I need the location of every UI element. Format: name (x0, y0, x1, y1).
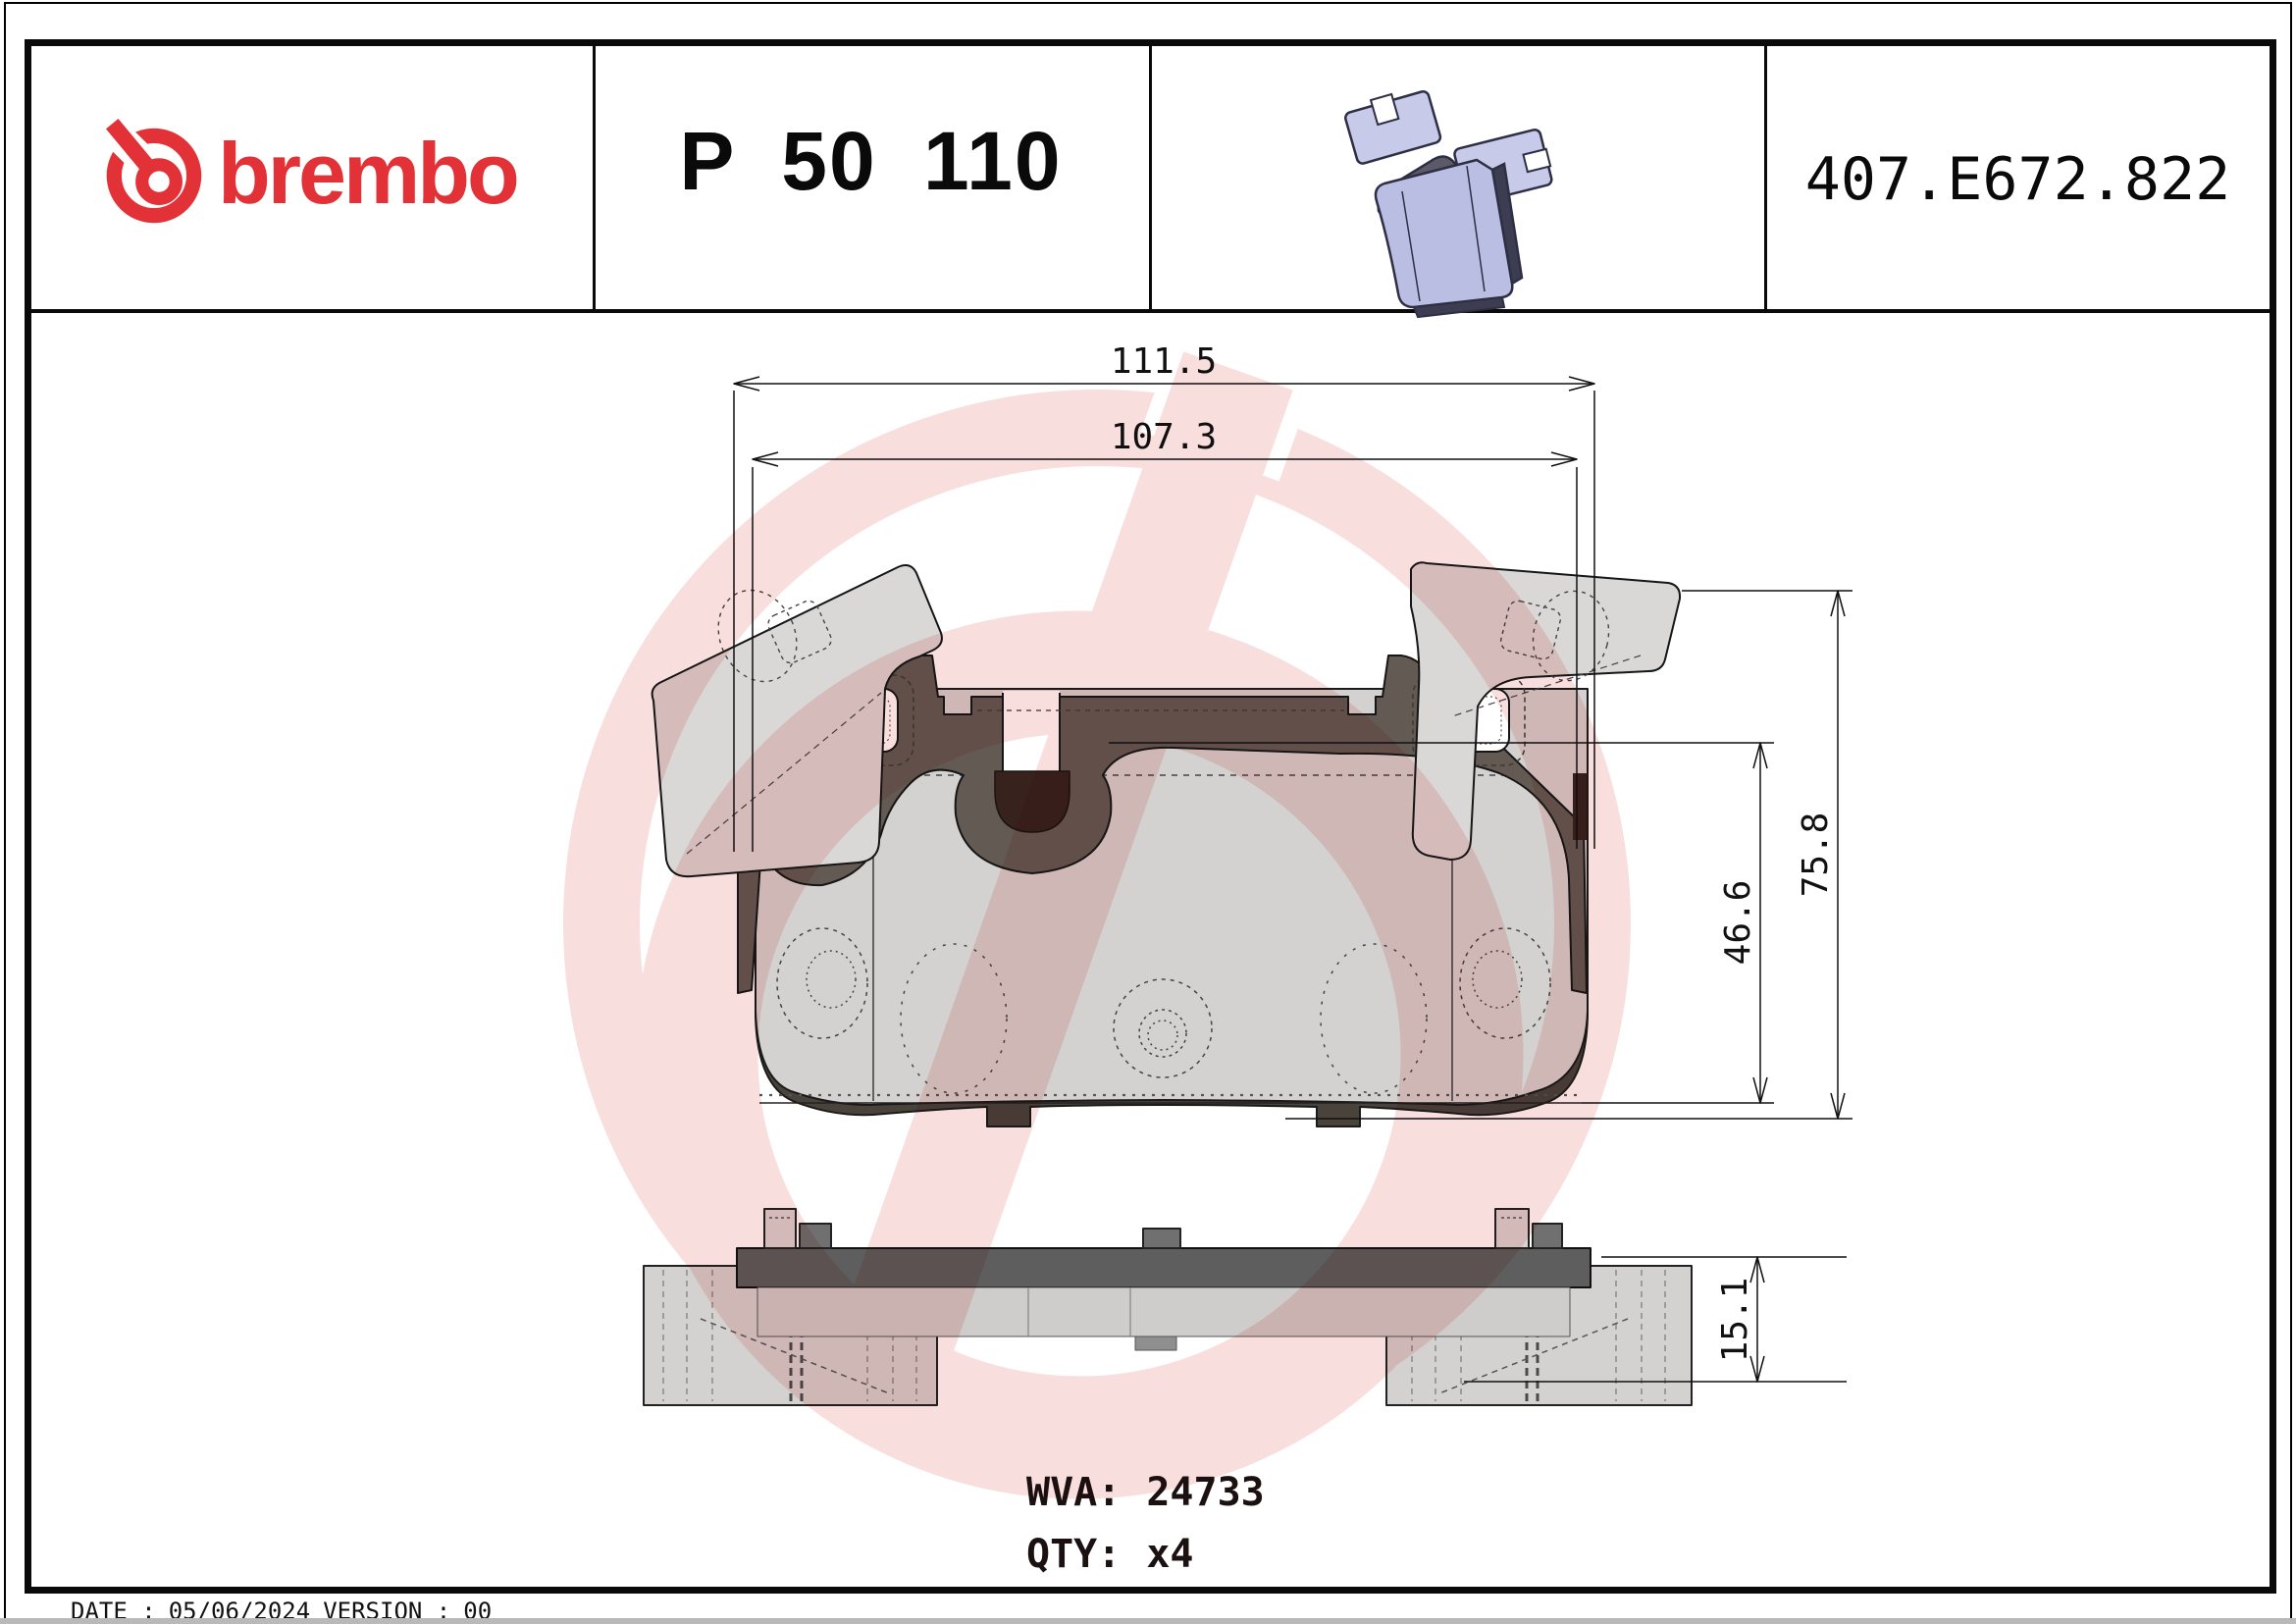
wva-row: WVA: 24733 (1026, 1470, 1265, 1532)
header-bottom-rule (25, 309, 2276, 313)
datasheet-page: 111.5 107.3 75.8 (0, 0, 2296, 1624)
header-divider-2 (1149, 46, 1152, 312)
qty-label: QTY: (1026, 1532, 1121, 1577)
wva-value: 24733 (1146, 1470, 1264, 1515)
qty-value: x4 (1146, 1532, 1193, 1577)
brake-pad-3d-image (1320, 44, 1614, 319)
brand-wordmark: brembo (218, 124, 517, 224)
wva-label: WVA: (1026, 1470, 1121, 1515)
part-number: P 50 110 (593, 114, 1149, 209)
bottom-edge-strip (0, 1618, 2296, 1624)
brembo-logo-icon (96, 116, 216, 236)
info-block: WVA: 24733 QTY: x4 (1026, 1470, 1265, 1594)
qty-row: QTY: x4 (1026, 1532, 1265, 1594)
catalog-code: 407.E672.822 (1764, 145, 2271, 214)
